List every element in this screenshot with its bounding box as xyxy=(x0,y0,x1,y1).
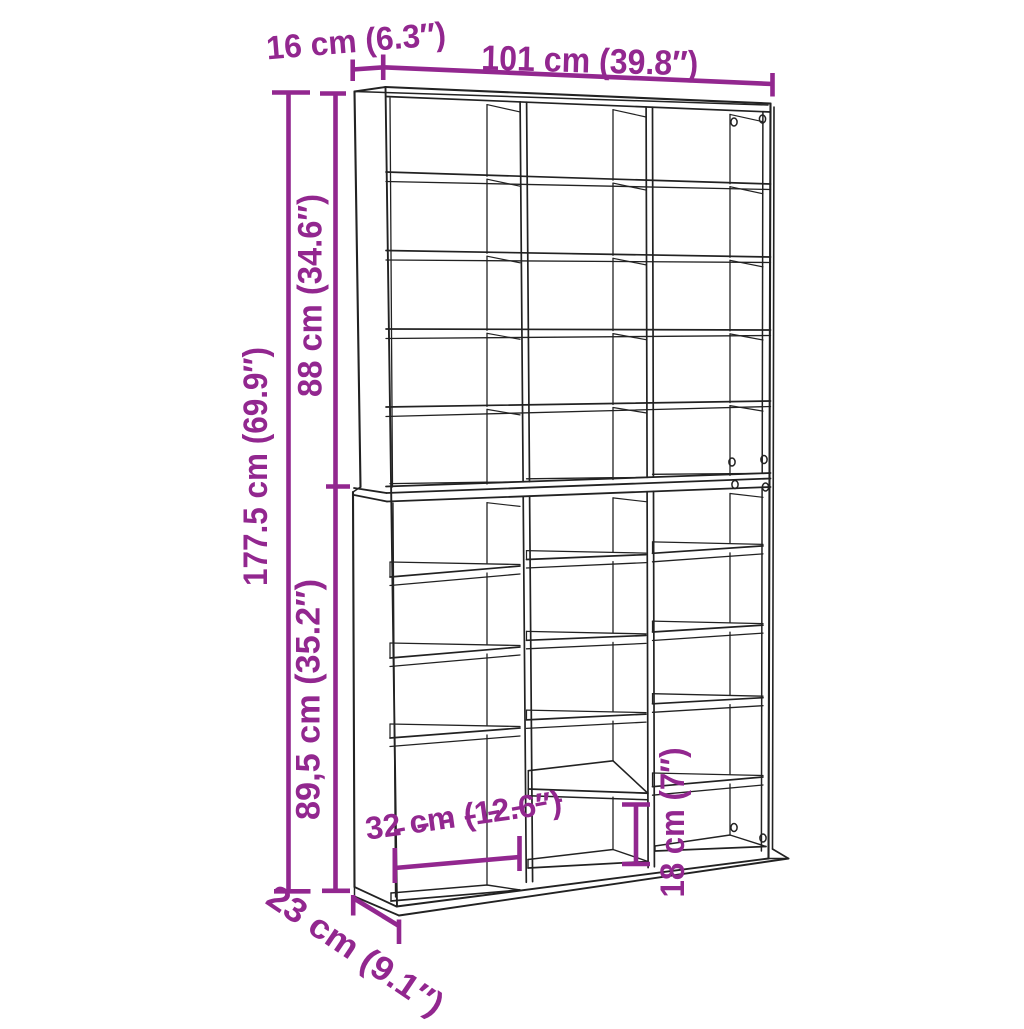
svg-text:101 cm (39.8″): 101 cm (39.8″) xyxy=(481,38,699,83)
svg-text:18 cm (7″): 18 cm (7″) xyxy=(654,748,692,898)
svg-text:88 cm (34.6″): 88 cm (34.6″) xyxy=(292,194,330,397)
svg-text:89,5 cm (35.2″): 89,5 cm (35.2″) xyxy=(290,579,328,820)
svg-text:177.5 cm (69.9″): 177.5 cm (69.9″) xyxy=(237,347,275,586)
